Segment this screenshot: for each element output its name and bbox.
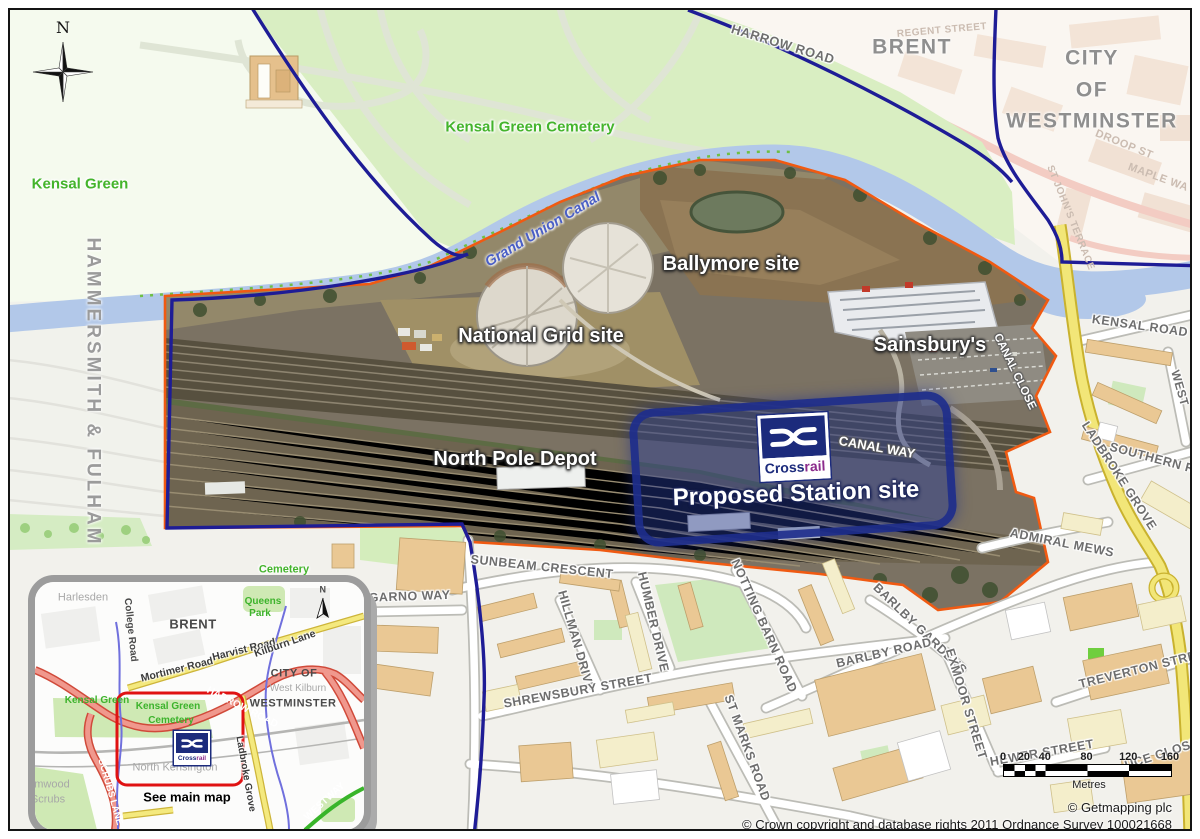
margin-bottom — [0, 829, 1200, 839]
inset-label-kg-cemetery-1: Kensal Green — [136, 702, 200, 712]
inset-label-see-main-map: See main map — [143, 791, 230, 804]
credit-getmapping: © Getmapping plc — [1068, 800, 1172, 815]
scale-bar: 0204080120160 Metres — [1003, 751, 1175, 791]
north-label: N — [56, 18, 70, 37]
margin-left — [0, 0, 10, 839]
scale-tick-160: 160 — [1157, 751, 1183, 763]
inset-label-kg-cemetery-2: Cemetery — [148, 716, 194, 726]
scale-ticks: 0204080120160 — [1003, 751, 1175, 764]
inset-location-map: Crossrail HarlesdenCollege RoadBRENTQuee… — [28, 575, 371, 837]
scale-bar-graphic — [1003, 764, 1172, 777]
inset-label-kensal-green: Kensal Green — [65, 696, 129, 706]
inset-label-harlesden: Harlesden — [58, 593, 108, 604]
scale-tick-120: 120 — [1115, 751, 1141, 763]
crossrail-wordmark: Crossrail — [763, 455, 828, 478]
inset-label-westminster: WESTMINSTER — [250, 699, 337, 710]
inset-label-scrubs: Scrubs — [31, 795, 65, 806]
margin-top — [0, 0, 1200, 10]
inset-label-queens: Queens — [245, 597, 282, 607]
inset-label-west-kilburn: West Kilburn — [270, 684, 327, 694]
crossrail-logo: Crossrail — [757, 412, 830, 482]
cemetery-chapel — [246, 56, 302, 108]
rail-lands-west — [8, 298, 165, 530]
margin-right — [1190, 0, 1200, 839]
map-canvas: N Crossrail Kensal GreenHAMMERSMITH & FU… — [0, 0, 1200, 839]
inset-label-north: N — [320, 586, 327, 595]
inset-label-city-of: CITY OF — [271, 669, 318, 680]
inset-crossrail-roundel-icon — [176, 733, 208, 753]
inset-crossrail-wordmark: Crossrail — [176, 753, 208, 763]
scale-tick-80: 80 — [1074, 751, 1100, 763]
scale-unit: Metres — [1003, 779, 1175, 791]
map-document: N Crossrail Kensal GreenHAMMERSMITH & FU… — [0, 0, 1200, 839]
inset-crossrail-logo: Crossrail — [174, 731, 210, 765]
inset-label-park: Park — [249, 609, 271, 619]
crossrail-roundel-icon — [760, 415, 826, 458]
compass-rose-icon — [28, 32, 98, 112]
scale-tick-40: 40 — [1032, 751, 1058, 763]
inset-label-brent: BRENT — [169, 618, 216, 631]
north-arrow: N — [28, 18, 98, 117]
inset-label-wormwood: Wormwood — [28, 780, 70, 791]
